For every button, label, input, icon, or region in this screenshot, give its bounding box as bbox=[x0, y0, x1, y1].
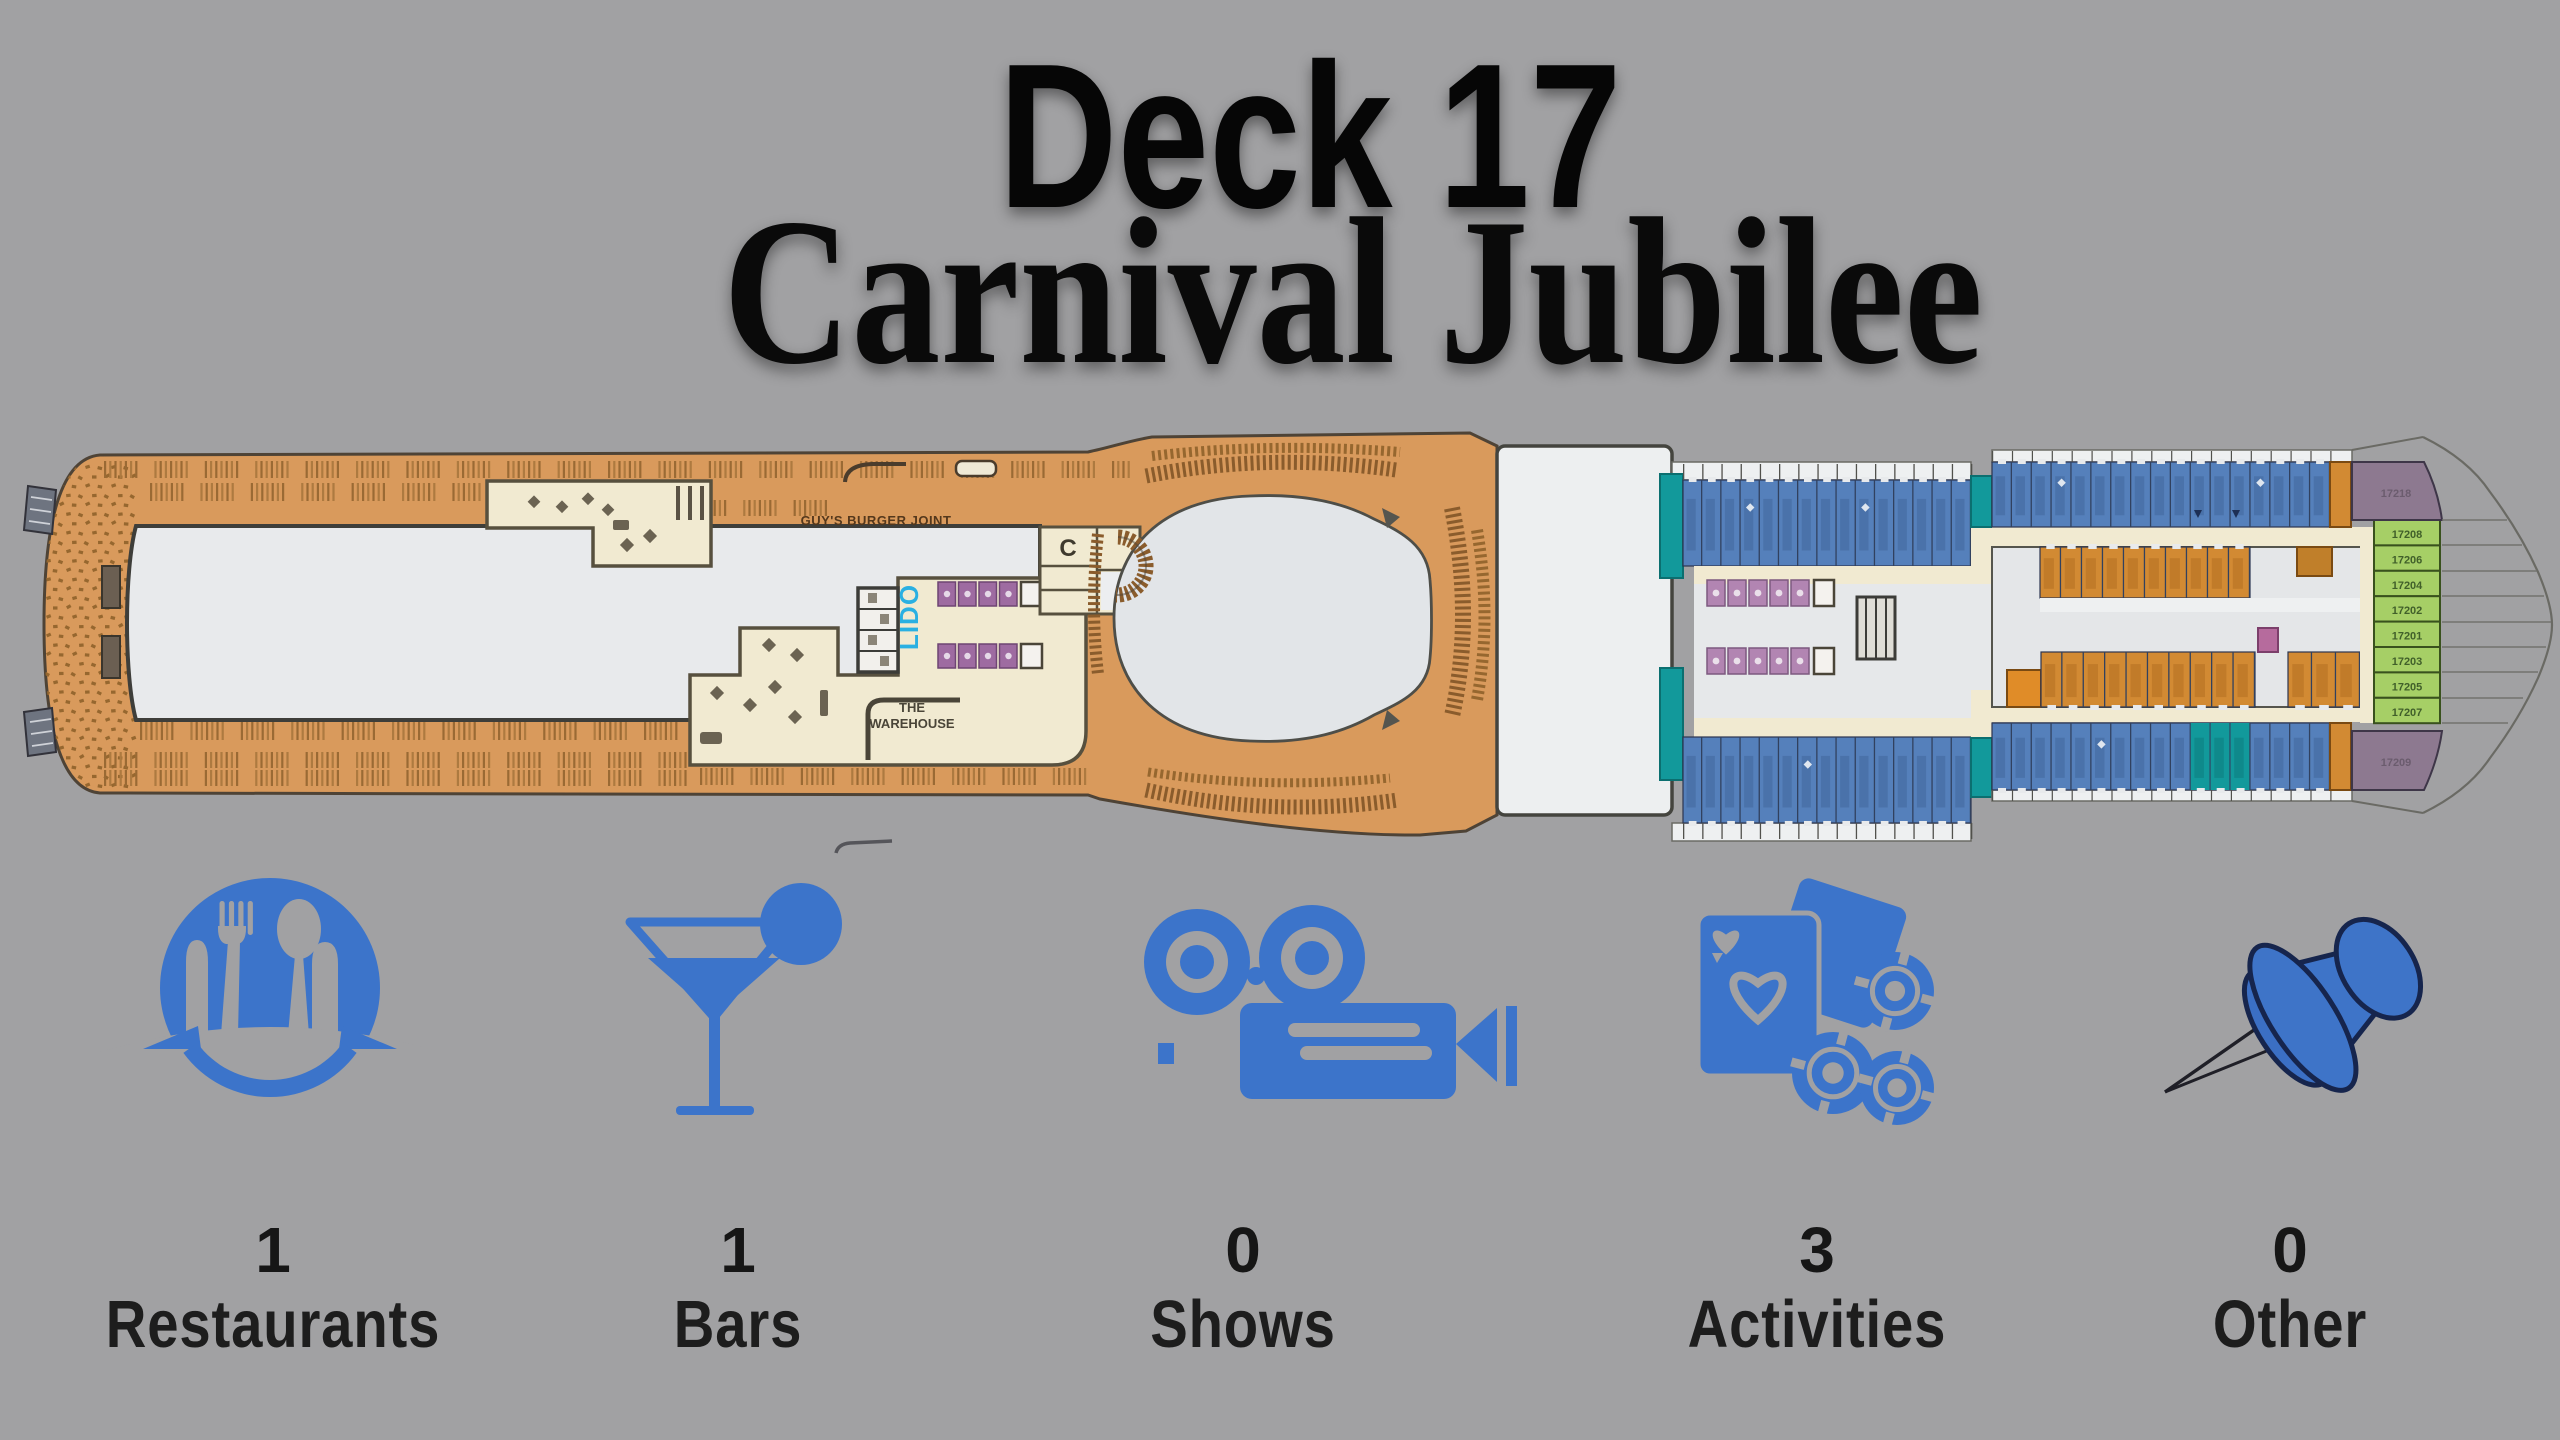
svg-text:17201: 17201 bbox=[2392, 631, 2423, 643]
svg-text:17203: 17203 bbox=[2392, 656, 2423, 668]
svg-text:LIDO: LIDO bbox=[894, 584, 924, 650]
svg-text:17209: 17209 bbox=[2381, 757, 2412, 769]
svg-text:GUY'S BURGER JOINT: GUY'S BURGER JOINT bbox=[801, 513, 952, 528]
svg-text:C: C bbox=[1059, 535, 1076, 562]
svg-text:17206: 17206 bbox=[2392, 554, 2423, 566]
svg-text:17208: 17208 bbox=[2392, 529, 2423, 541]
svg-text:17205: 17205 bbox=[2392, 681, 2423, 693]
svg-text:17204: 17204 bbox=[2392, 580, 2423, 592]
svg-text:17218: 17218 bbox=[2381, 488, 2412, 500]
svg-text:WAREHOUSE: WAREHOUSE bbox=[869, 716, 955, 731]
svg-text:17202: 17202 bbox=[2392, 605, 2423, 617]
svg-text:THE: THE bbox=[899, 700, 925, 715]
svg-text:17207: 17207 bbox=[2392, 707, 2423, 719]
